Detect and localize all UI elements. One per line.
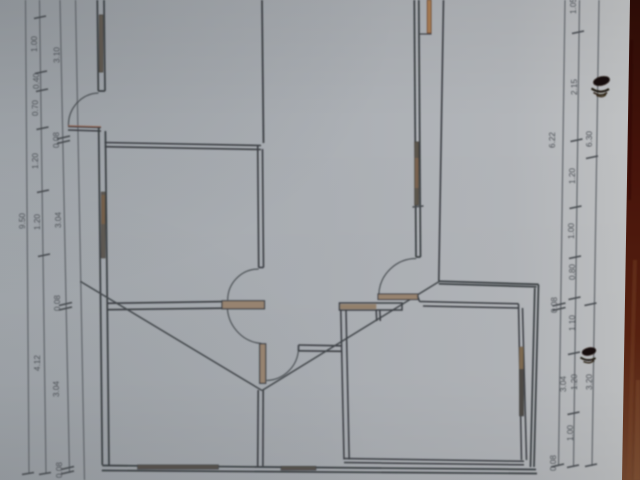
svg-text:1.20: 1.20	[570, 374, 579, 390]
svg-text:3.10: 3.10	[53, 47, 62, 63]
svg-text:1.00: 1.00	[566, 425, 575, 441]
svg-text:0.70: 0.70	[31, 100, 40, 116]
svg-text:0.08: 0.08	[52, 132, 61, 148]
svg-text:6.30: 6.30	[585, 131, 594, 147]
svg-text:0.40: 0.40	[32, 73, 41, 89]
svg-text:3.04: 3.04	[559, 376, 568, 392]
svg-text:3.20: 3.20	[585, 374, 594, 390]
svg-text:1.20: 1.20	[568, 168, 577, 184]
svg-text:1.20: 1.20	[33, 214, 42, 230]
svg-text:3.04: 3.04	[54, 212, 63, 228]
svg-text:9.50: 9.50	[18, 213, 27, 229]
svg-text:1.20: 1.20	[31, 153, 40, 169]
svg-text:1.00: 1.00	[30, 36, 39, 52]
svg-text:1.10: 1.10	[568, 315, 577, 331]
svg-text:1.00: 1.00	[567, 223, 576, 239]
svg-text:0.08: 0.08	[55, 462, 64, 478]
svg-text:0.08: 0.08	[53, 295, 62, 311]
svg-text:0.80: 0.80	[568, 264, 577, 280]
svg-text:1.05: 1.05	[569, 0, 578, 14]
svg-text:0.08: 0.08	[549, 455, 558, 471]
svg-text:4.12: 4.12	[33, 355, 42, 371]
svg-text:3.04: 3.04	[52, 381, 61, 397]
svg-text:0.08: 0.08	[550, 297, 559, 313]
svg-text:6.22: 6.22	[548, 132, 557, 148]
svg-text:2.15: 2.15	[570, 79, 579, 95]
